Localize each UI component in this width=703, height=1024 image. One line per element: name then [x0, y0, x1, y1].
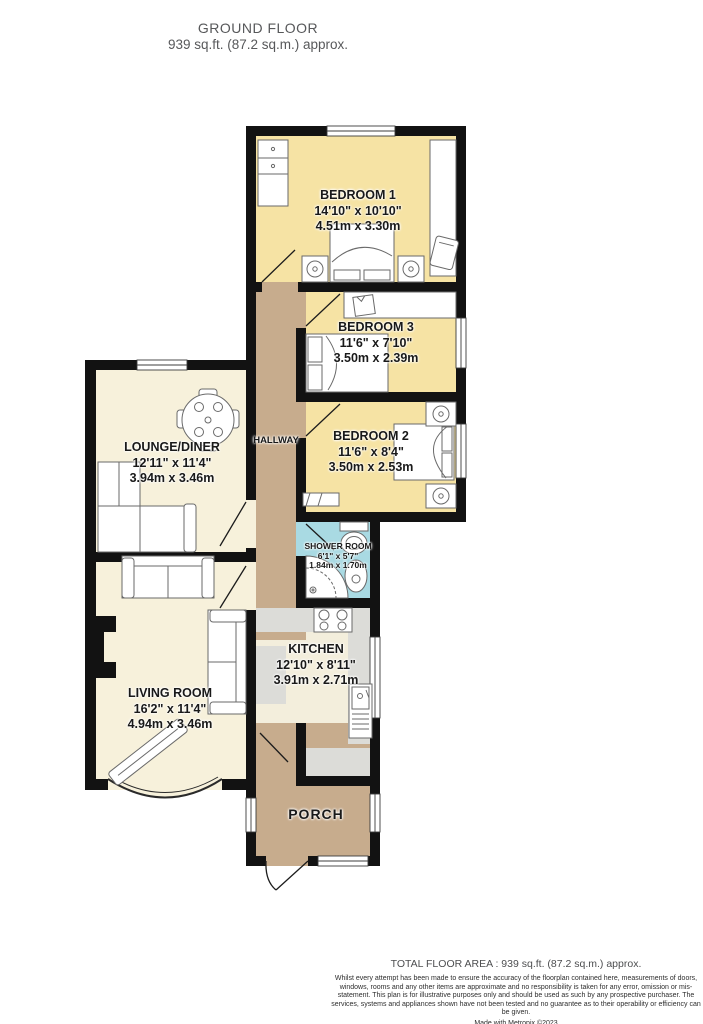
bedroom3-window-icon	[456, 318, 466, 368]
bedroom2-window-icon	[456, 424, 466, 478]
bedroom1-label: BEDROOM 1 14'10" x 10'10" 4.51m x 3.30m	[314, 188, 401, 235]
fireplace-icon	[96, 616, 116, 632]
total-floor-area: TOTAL FLOOR AREA : 939 sq.ft. (87.2 sq.m…	[327, 958, 703, 971]
room-name: HALLWAY	[253, 435, 299, 446]
bedroom2-label: BEDROOM 2 11'6" x 8'4" 3.50m x 2.53m	[329, 429, 414, 476]
bedroom1-chest-icon	[258, 140, 288, 206]
bedroom1-window-icon	[327, 126, 395, 136]
bedroom1-nightstand-icon	[302, 256, 328, 282]
bedroom1-nightstand-icon-2	[398, 256, 424, 282]
room-dims-imperial: 11'6" x 8'4"	[329, 445, 414, 461]
sofa-icon	[122, 556, 214, 598]
room-dims-imperial: 14'10" x 10'10"	[314, 204, 401, 220]
room-dims-metric: 3.50m x 2.53m	[329, 460, 414, 476]
room-name: PORCH	[288, 806, 344, 822]
room-dims-metric: 1.84m x 1.70m	[304, 561, 371, 571]
bedroom3-wardrobe-icon	[344, 292, 456, 318]
porch-left-window-icon	[246, 798, 256, 832]
room-name: BEDROOM 1	[314, 188, 401, 204]
room-dims-metric: 3.91m x 2.71m	[274, 673, 359, 689]
bedroom2-rug-icon	[303, 493, 339, 506]
room-name: LIVING ROOM	[128, 686, 213, 702]
room-dims-imperial: 12'10" x 8'11"	[274, 658, 359, 674]
shower-room-label: SHOWER ROOM 6'1" x 5'7" 1.84m x 1.70m	[304, 542, 371, 571]
lounge-diner-label: LOUNGE/DINER 12'11" x 11'4" 3.94m x 3.46…	[124, 440, 220, 487]
porch-label: PORCH	[288, 806, 344, 822]
kitchen-label: KITCHEN 12'10" x 8'11" 3.91m x 2.71m	[274, 642, 359, 689]
room-dims-metric: 4.94m x 3.46m	[128, 717, 213, 733]
disclaimer-text: Whilst every attempt has been made to en…	[327, 975, 703, 1018]
room-dims-imperial: 16'2" x 11'4"	[128, 702, 213, 718]
room-name: KITCHEN	[274, 642, 359, 658]
bedroom1-wardrobe-icon	[429, 140, 459, 276]
bedroom2-nightstand-icon-2	[426, 484, 456, 508]
hob-icon	[314, 608, 352, 632]
bedroom3-label: BEDROOM 3 11'6" x 7'10" 3.50m x 2.39m	[334, 320, 419, 367]
room-dims-imperial: 11'6" x 7'10"	[334, 336, 419, 352]
dining-table-icon	[182, 394, 234, 446]
room-name: BEDROOM 3	[334, 320, 419, 336]
room-dims-metric: 4.51m x 3.30m	[314, 219, 401, 235]
bedroom2-nightstand-icon	[426, 402, 456, 426]
room-name: BEDROOM 2	[329, 429, 414, 445]
credit-text: Made with Metropix ©2023	[327, 1019, 703, 1024]
kitchen-sink-icon	[349, 684, 372, 738]
room-dims-metric: 3.94m x 3.46m	[124, 471, 220, 487]
living-room-label: LIVING ROOM 16'2" x 11'4" 4.94m x 3.46m	[128, 686, 213, 733]
plan-footer: TOTAL FLOOR AREA : 939 sq.ft. (87.2 sq.m…	[327, 958, 703, 1024]
floorplan-drawing	[0, 0, 703, 1024]
room-dims-imperial: 12'11" x 11'4"	[124, 456, 220, 472]
room-dims-metric: 3.50m x 2.39m	[334, 351, 419, 367]
sofa-icon-2	[208, 610, 246, 714]
room-name: LOUNGE/DINER	[124, 440, 220, 456]
porch-right-window-icon	[370, 794, 380, 832]
floorplan-page: GROUND FLOOR 939 sq.ft. (87.2 sq.m.) app…	[0, 0, 703, 1024]
lounge-window-icon	[137, 360, 187, 370]
hallway-label: HALLWAY	[253, 435, 299, 446]
porch-floor	[246, 723, 380, 866]
porch-front-window-icon	[318, 856, 368, 866]
